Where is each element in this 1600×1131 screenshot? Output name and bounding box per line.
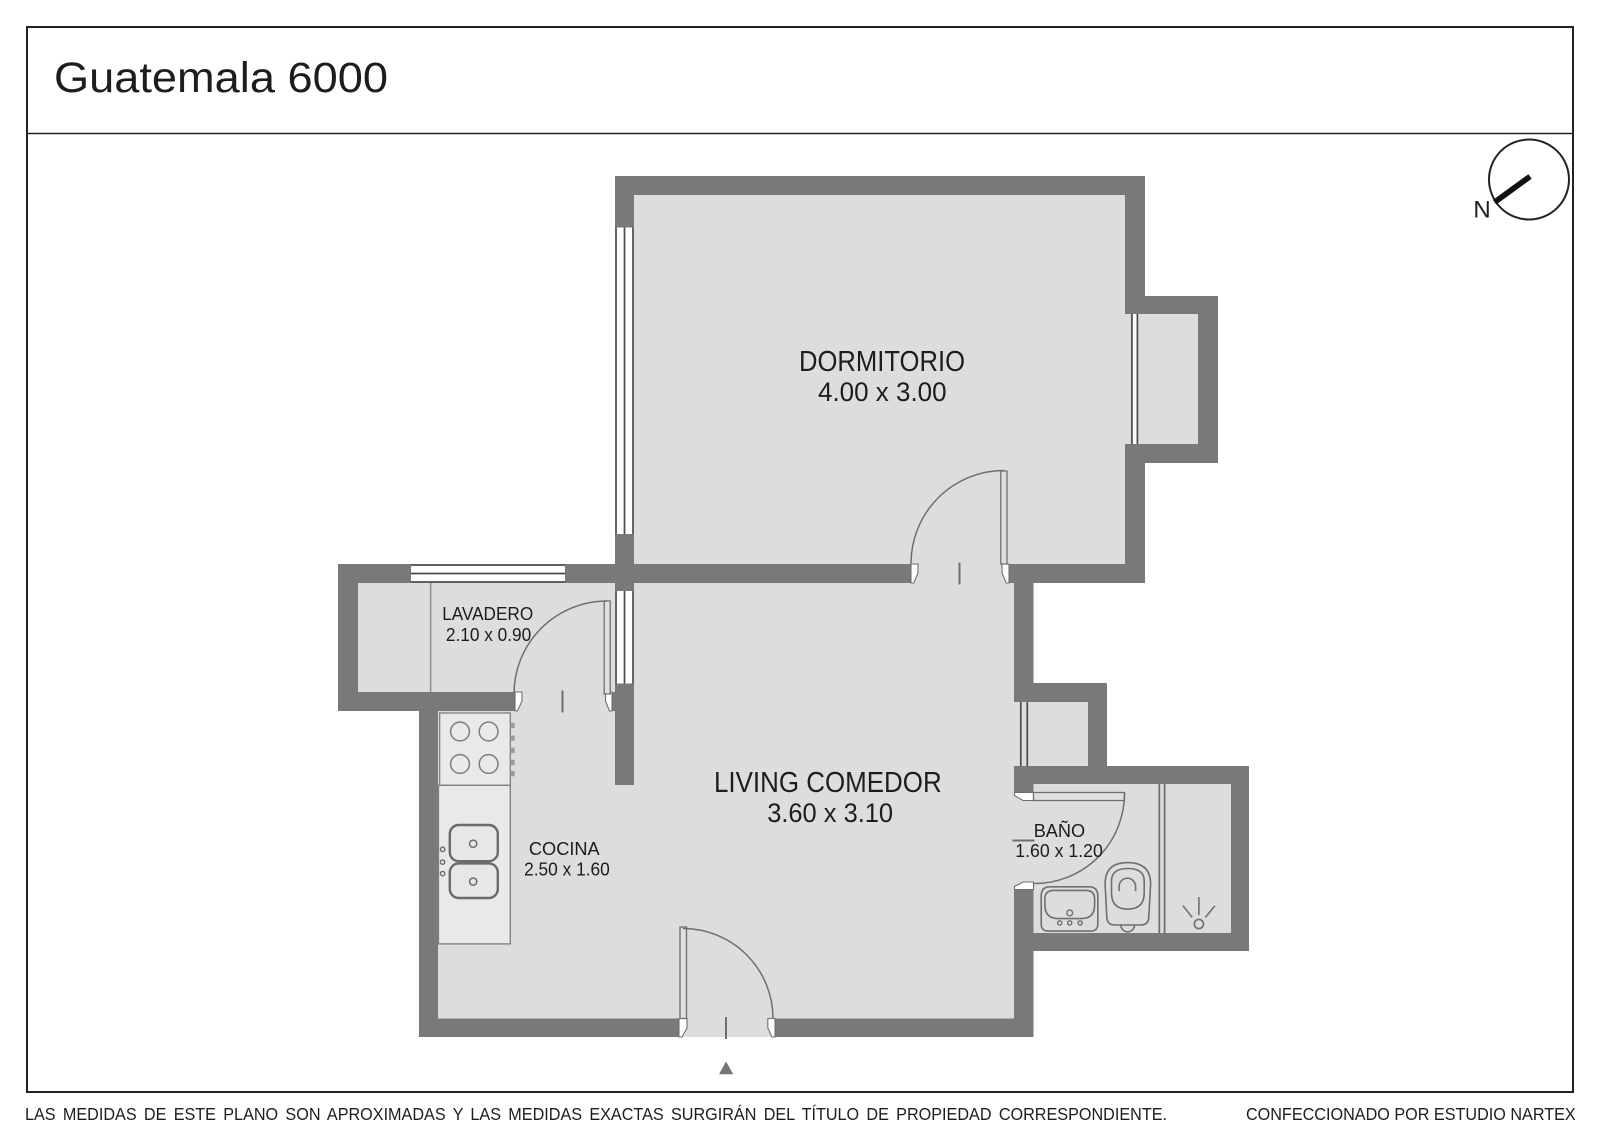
svg-text:1.60 x 1.20: 1.60 x 1.20 [1015, 840, 1103, 861]
svg-text:N: N [1473, 197, 1490, 224]
svg-text:COCINA: COCINA [529, 838, 600, 859]
svg-text:LIVING COMEDOR: LIVING COMEDOR [714, 767, 942, 799]
svg-text:LAS MEDIDAS DE ESTE PLANO SON: LAS MEDIDAS DE ESTE PLANO SON APROXIMADA… [25, 1104, 1167, 1124]
svg-text:LAVADERO: LAVADERO [442, 603, 533, 624]
svg-text:3.60 x 3.10: 3.60 x 3.10 [767, 798, 893, 828]
svg-text:Guatemala 6000: Guatemala 6000 [54, 54, 388, 102]
svg-text:CONFECCIONADO POR ESTUDIO NART: CONFECCIONADO POR ESTUDIO NARTEX [1246, 1104, 1576, 1124]
svg-text:2.50 x 1.60: 2.50 x 1.60 [524, 859, 610, 880]
svg-text:4.00 x 3.00: 4.00 x 3.00 [818, 377, 947, 407]
svg-text:BAÑO: BAÑO [1034, 820, 1086, 841]
svg-text:DORMITORIO: DORMITORIO [799, 346, 965, 378]
svg-text:2.10 x 0.90: 2.10 x 0.90 [446, 624, 531, 645]
